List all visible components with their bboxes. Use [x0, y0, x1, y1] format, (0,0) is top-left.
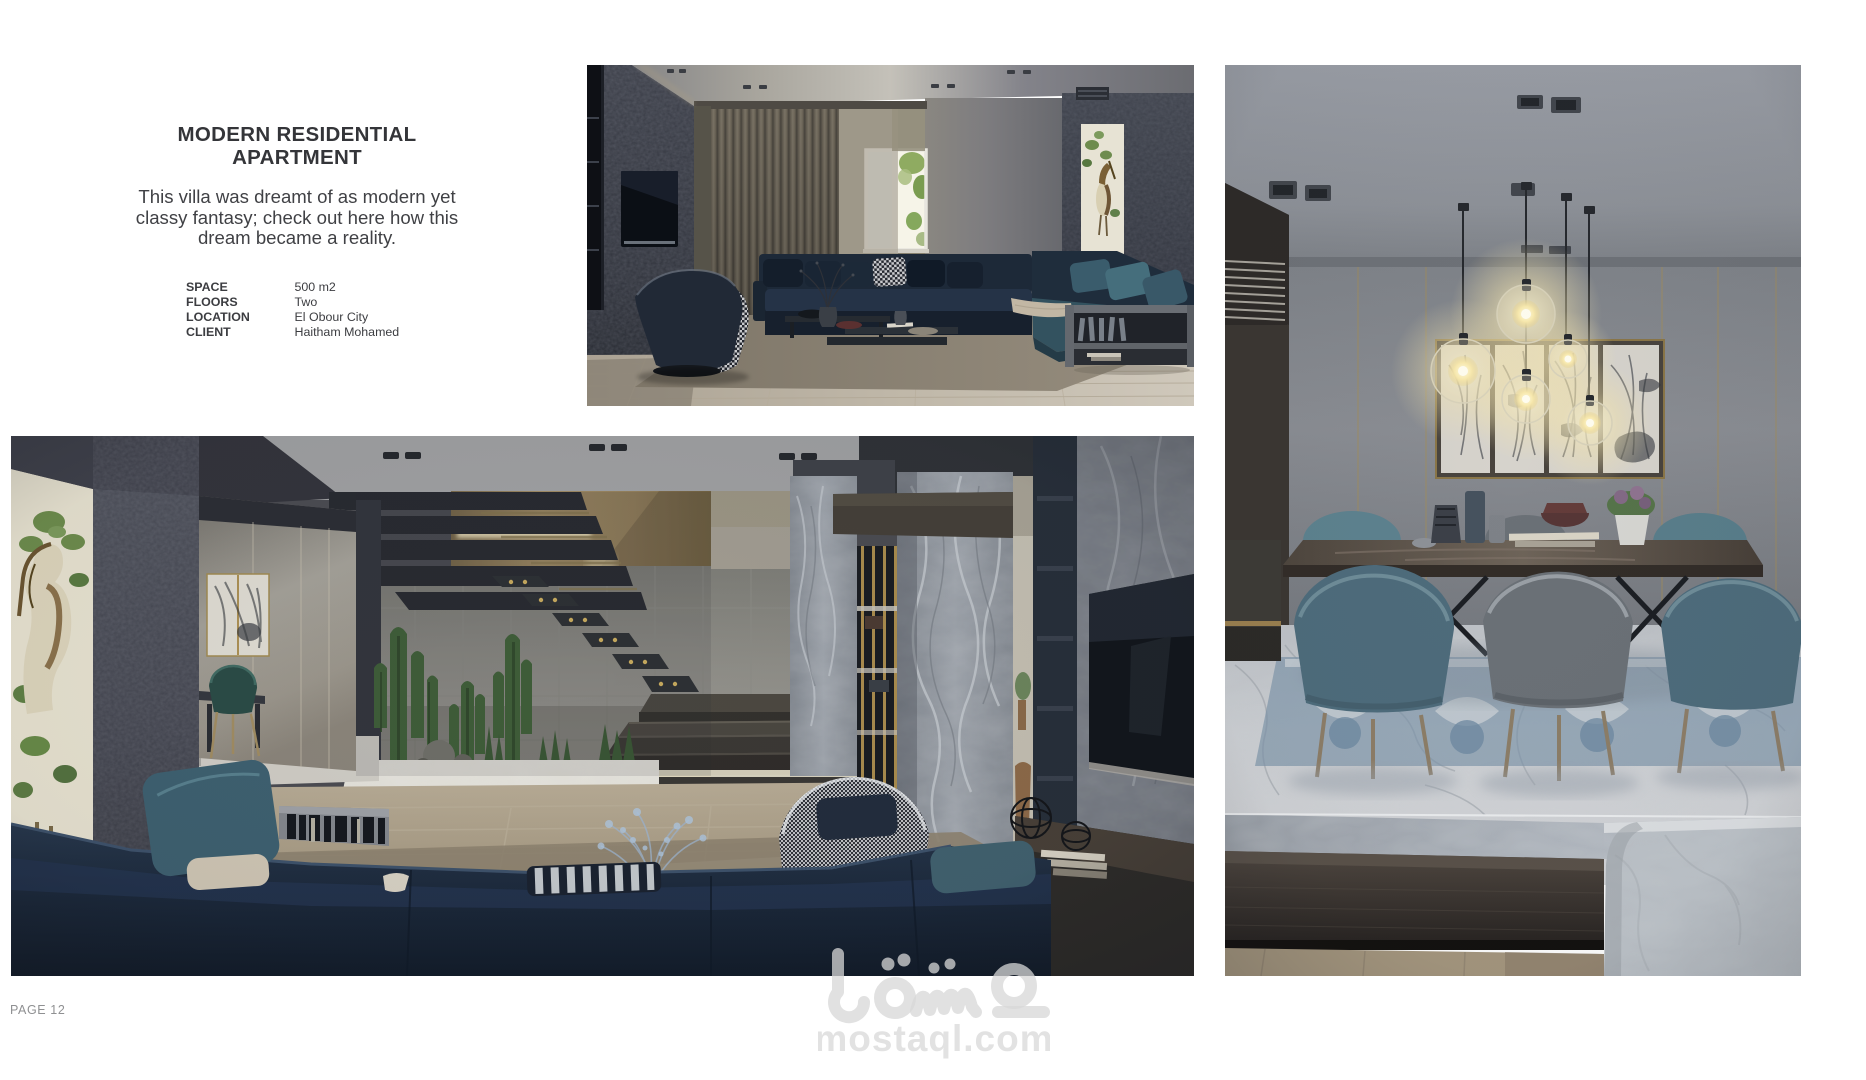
svg-text:mostaql.com: mostaql.com	[818, 1018, 1050, 1059]
